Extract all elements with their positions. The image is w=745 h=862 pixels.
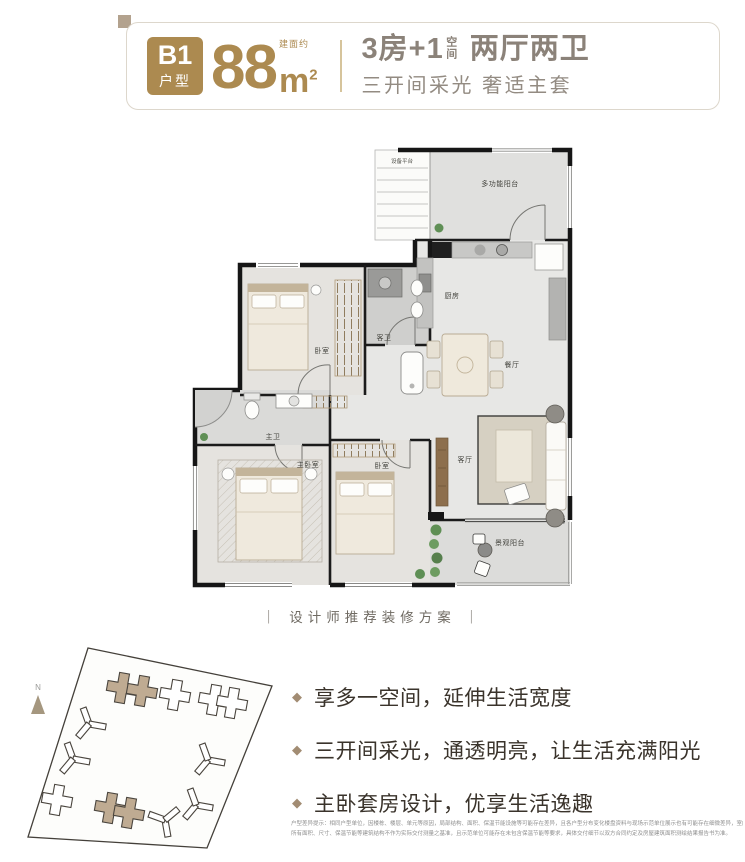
feature-text: 享多一空间，延伸生活宽度: [314, 682, 572, 712]
feature-item: ◆ 主卧套房设计，优享生活逸趣: [292, 788, 742, 818]
area-unit-column: 建面约 m2: [279, 37, 318, 95]
label-guest-bath: 客卫: [377, 333, 392, 342]
master-bedroom-furniture: [218, 460, 322, 562]
area-figure: 88 建面约 m2: [211, 37, 318, 95]
area-unit: m2: [279, 68, 318, 95]
north-label: N: [35, 683, 41, 692]
unit-type-code: B1: [158, 42, 193, 69]
unit-type-badge: B1 户型: [147, 37, 203, 95]
label-living: 客厅: [458, 455, 473, 464]
disclaimer-line2: 所有面积、尺寸、保温节能等建筑结构不作为实际交付测量之基准，且示范单位可能存在未…: [291, 830, 743, 840]
floor-plan: 设备平台 多功能阳台 厨房 餐厅 客卫 卧室 主卫 主卧室 卧室 客厅 景观阳台: [180, 138, 580, 598]
label-dining: 餐厅: [505, 360, 520, 369]
area-value: 88: [211, 42, 276, 95]
feature-item: ◆ 三开间采光，通透明亮，让生活充满阳光: [292, 735, 742, 765]
feature-item: ◆ 享多一空间，延伸生活宽度: [292, 682, 742, 712]
north-arrow-icon: N: [31, 683, 45, 714]
feature-text: 主卧套房设计，优享生活逸趣: [314, 788, 594, 818]
unit-type-label: 户型: [159, 71, 191, 91]
headline-stacked: 空间: [445, 36, 456, 60]
feature-list: ◆ 享多一空间，延伸生活宽度 ◆ 三开间采光，通透明亮，让生活充满阳光 ◆ 主卧…: [292, 682, 742, 841]
area-note: 建面约: [279, 37, 318, 50]
top-bedroom-furniture: [248, 280, 361, 376]
balcony-plant: [435, 224, 444, 233]
header-card: B1 户型 88 建面约 m2 3房+1空间两厅两卫 三开间采光 奢适主套: [126, 22, 720, 110]
disclaimer: 户型差异提示：相同户型单位，因楼栋、楼层、单元等原因，局部结构、面积、保温节能设…: [291, 820, 743, 839]
label-bedroom-second: 卧室: [375, 461, 390, 470]
label-equipment-platform: 设备平台: [391, 157, 414, 165]
floorplan-poster: B1 户型 88 建面约 m2 3房+1空间两厅两卫 三开间采光 奢适主套: [0, 0, 745, 862]
caption: ｜ 设计师推荐装修方案 ｜: [0, 606, 745, 626]
diamond-bullet-icon: ◆: [292, 689, 302, 705]
label-multi-balcony: 多功能阳台: [481, 179, 519, 188]
feature-text: 三开间采光，通透明亮，让生活充满阳光: [314, 735, 701, 765]
label-view-balcony: 景观阳台: [495, 538, 525, 547]
vertical-divider: [340, 40, 342, 92]
headline-block: 3房+1空间两厅两卫 三开间采光 奢适主套: [362, 35, 590, 98]
headline-part1: 3房+1: [362, 35, 444, 64]
diamond-bullet-icon: ◆: [292, 795, 302, 811]
label-bedroom-top: 卧室: [315, 346, 330, 355]
label-kitchen: 厨房: [445, 291, 460, 300]
label-master-bedroom: 主卧室: [297, 460, 320, 469]
headline-sub: 三开间采光 奢适主套: [362, 69, 590, 98]
site-plan: N: [22, 638, 278, 854]
headline-main: 3房+1空间两厅两卫: [362, 35, 590, 64]
diamond-bullet-icon: ◆: [292, 742, 302, 758]
headline-part2: 两厅两卫: [470, 35, 590, 64]
label-master-bath: 主卫: [266, 432, 281, 441]
disclaimer-line1: 户型差异提示：相同户型单位，因楼栋、楼层、单元等原因，局部结构、面积、保温节能设…: [291, 820, 743, 830]
